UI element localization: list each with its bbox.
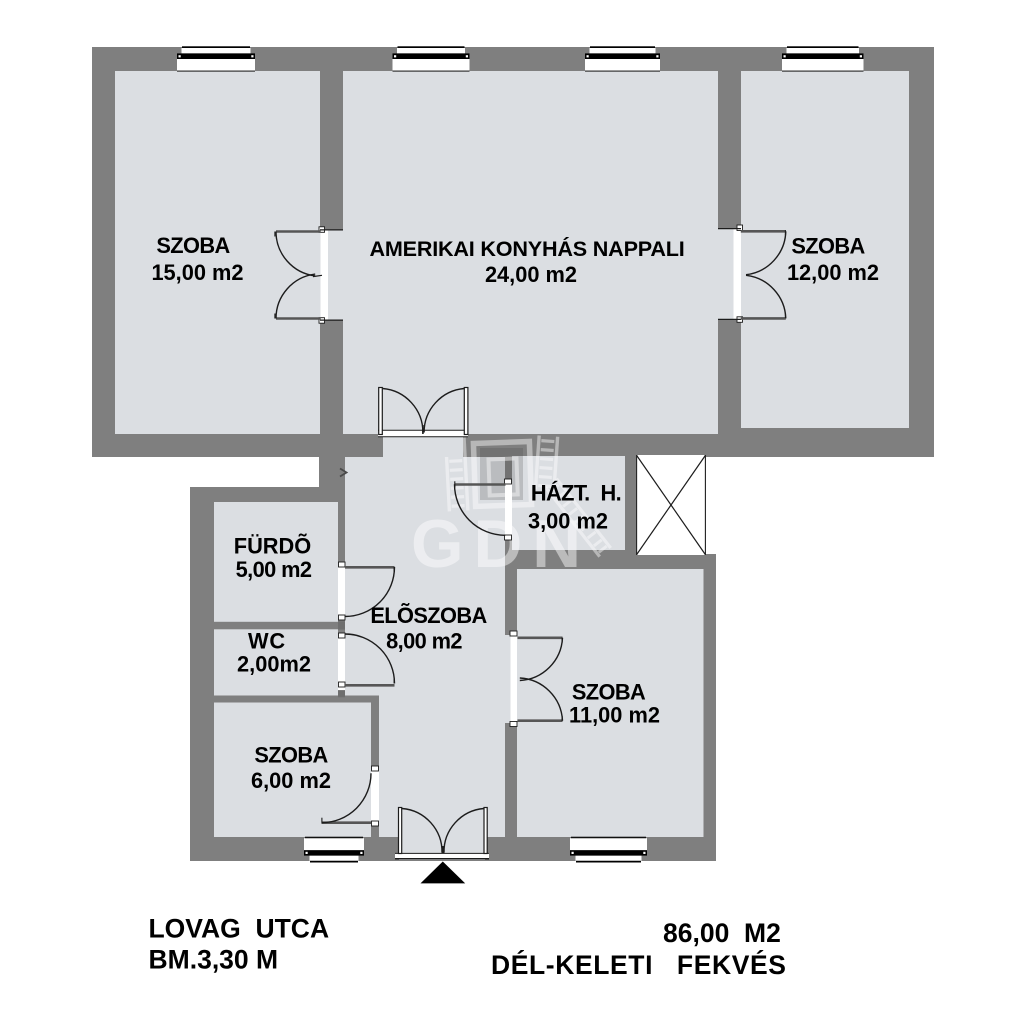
svg-text:2,00m2: 2,00m2 <box>237 652 311 677</box>
svg-text:SZOBA: SZOBA <box>254 743 328 768</box>
svg-text:SZOBA: SZOBA <box>572 680 646 705</box>
svg-text:SZOBA: SZOBA <box>156 233 230 258</box>
svg-text:BM.3,30 M: BM.3,30 M <box>149 945 279 975</box>
svg-text:LOVAG UTCA: LOVAG UTCA <box>149 914 330 944</box>
svg-text:3,00 m2: 3,00 m2 <box>528 509 608 534</box>
svg-text:86,00 M2: 86,00 M2 <box>663 918 781 948</box>
svg-text:FÜRDÕ: FÜRDÕ <box>234 534 312 559</box>
svg-text:12,00 m2: 12,00 m2 <box>787 260 879 285</box>
svg-text:ELÕSZOBA: ELÕSZOBA <box>370 603 487 628</box>
svg-text:DÉL-KELETI FEKVÉS: DÉL-KELETI FEKVÉS <box>491 950 787 980</box>
svg-text:5,00 m2: 5,00 m2 <box>236 557 312 582</box>
svg-text:15,00 m2: 15,00 m2 <box>151 260 243 285</box>
svg-text:6,00 m2: 6,00 m2 <box>251 768 331 793</box>
svg-text:8,00 m2: 8,00 m2 <box>386 629 462 654</box>
svg-text:11,00 m2: 11,00 m2 <box>569 703 660 728</box>
svg-text:HÁZT. H.: HÁZT. H. <box>531 481 621 506</box>
svg-text:24,00 m2: 24,00 m2 <box>485 262 577 287</box>
svg-text:WC: WC <box>248 629 286 654</box>
svg-text:AMERIKAI KONYHÁS NAPPALI: AMERIKAI KONYHÁS NAPPALI <box>369 236 684 261</box>
svg-text:SZOBA: SZOBA <box>791 234 865 259</box>
